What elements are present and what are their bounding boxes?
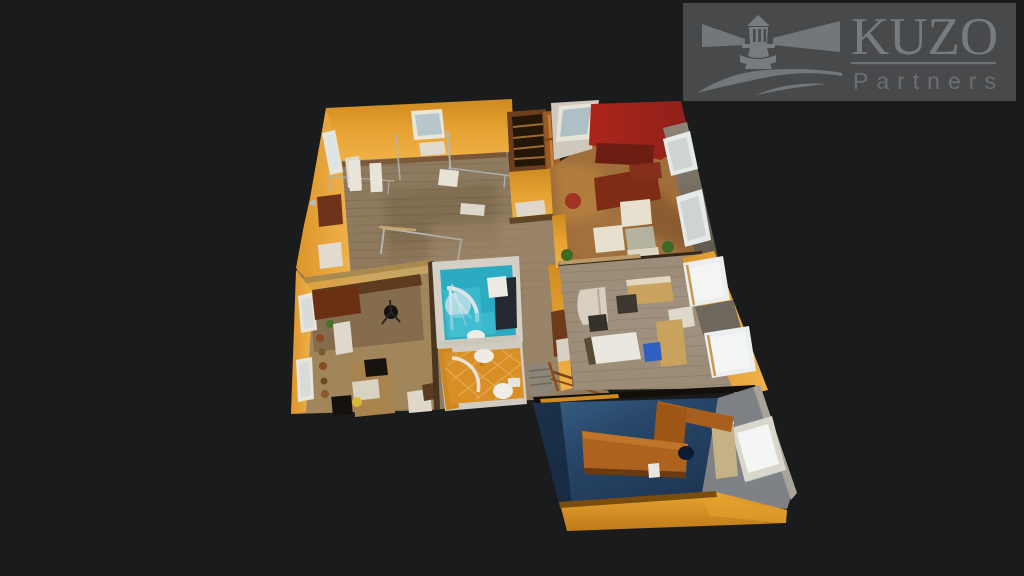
svg-text:Partners: Partners — [853, 68, 1004, 94]
svg-text:KUZO: KUZO — [851, 8, 998, 66]
